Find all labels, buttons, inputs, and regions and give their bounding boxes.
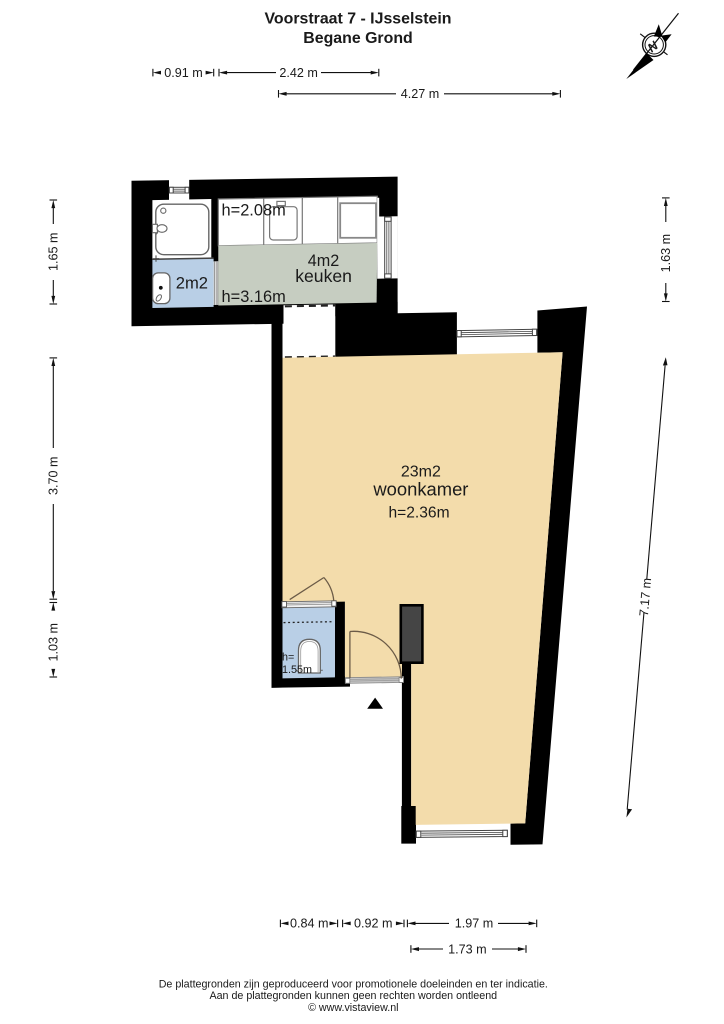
svg-text:3.70 m: 3.70 m	[47, 457, 61, 496]
svg-text:1.63 m: 1.63 m	[659, 234, 673, 273]
svg-text:Begane Grond: Begane Grond	[303, 30, 412, 47]
svg-text:Aan de plattegronden kunnen ge: Aan de plattegronden kunnen geen rechten…	[209, 990, 497, 1002]
svg-text:0.92 m: 0.92 m	[354, 917, 393, 931]
svg-text:1.03 m: 1.03 m	[47, 623, 61, 662]
svg-text:2m2: 2m2	[176, 274, 208, 293]
svg-text:keuken: keuken	[295, 266, 352, 286]
svg-text:© www.vistaview.nl: © www.vistaview.nl	[308, 1002, 398, 1014]
svg-text:0.91 m: 0.91 m	[164, 66, 203, 80]
svg-text:7.17 m: 7.17 m	[637, 577, 654, 617]
svg-text:4.27 m: 4.27 m	[401, 87, 440, 101]
svg-text:2.42 m: 2.42 m	[279, 66, 318, 80]
svg-text:1.97 m: 1.97 m	[455, 917, 494, 931]
svg-text:1.65 m: 1.65 m	[47, 233, 61, 272]
svg-text:1.55m: 1.55m	[282, 664, 312, 676]
svg-text:h=2.08m: h=2.08m	[222, 202, 286, 220]
svg-text:woonkamer: woonkamer	[372, 479, 468, 500]
svg-text:Voorstraat 7 - IJsselstein: Voorstraat 7 - IJsselstein	[265, 11, 452, 28]
svg-text:h=: h=	[282, 651, 294, 663]
svg-text:h=2.36m: h=2.36m	[388, 505, 449, 522]
svg-text:1.73 m: 1.73 m	[448, 942, 487, 956]
svg-text:h=3.16m: h=3.16m	[222, 288, 286, 306]
svg-text:0.84 m: 0.84 m	[290, 917, 329, 931]
svg-text:De plattegronden zijn geproduc: De plattegronden zijn geproduceerd voor …	[159, 979, 548, 991]
